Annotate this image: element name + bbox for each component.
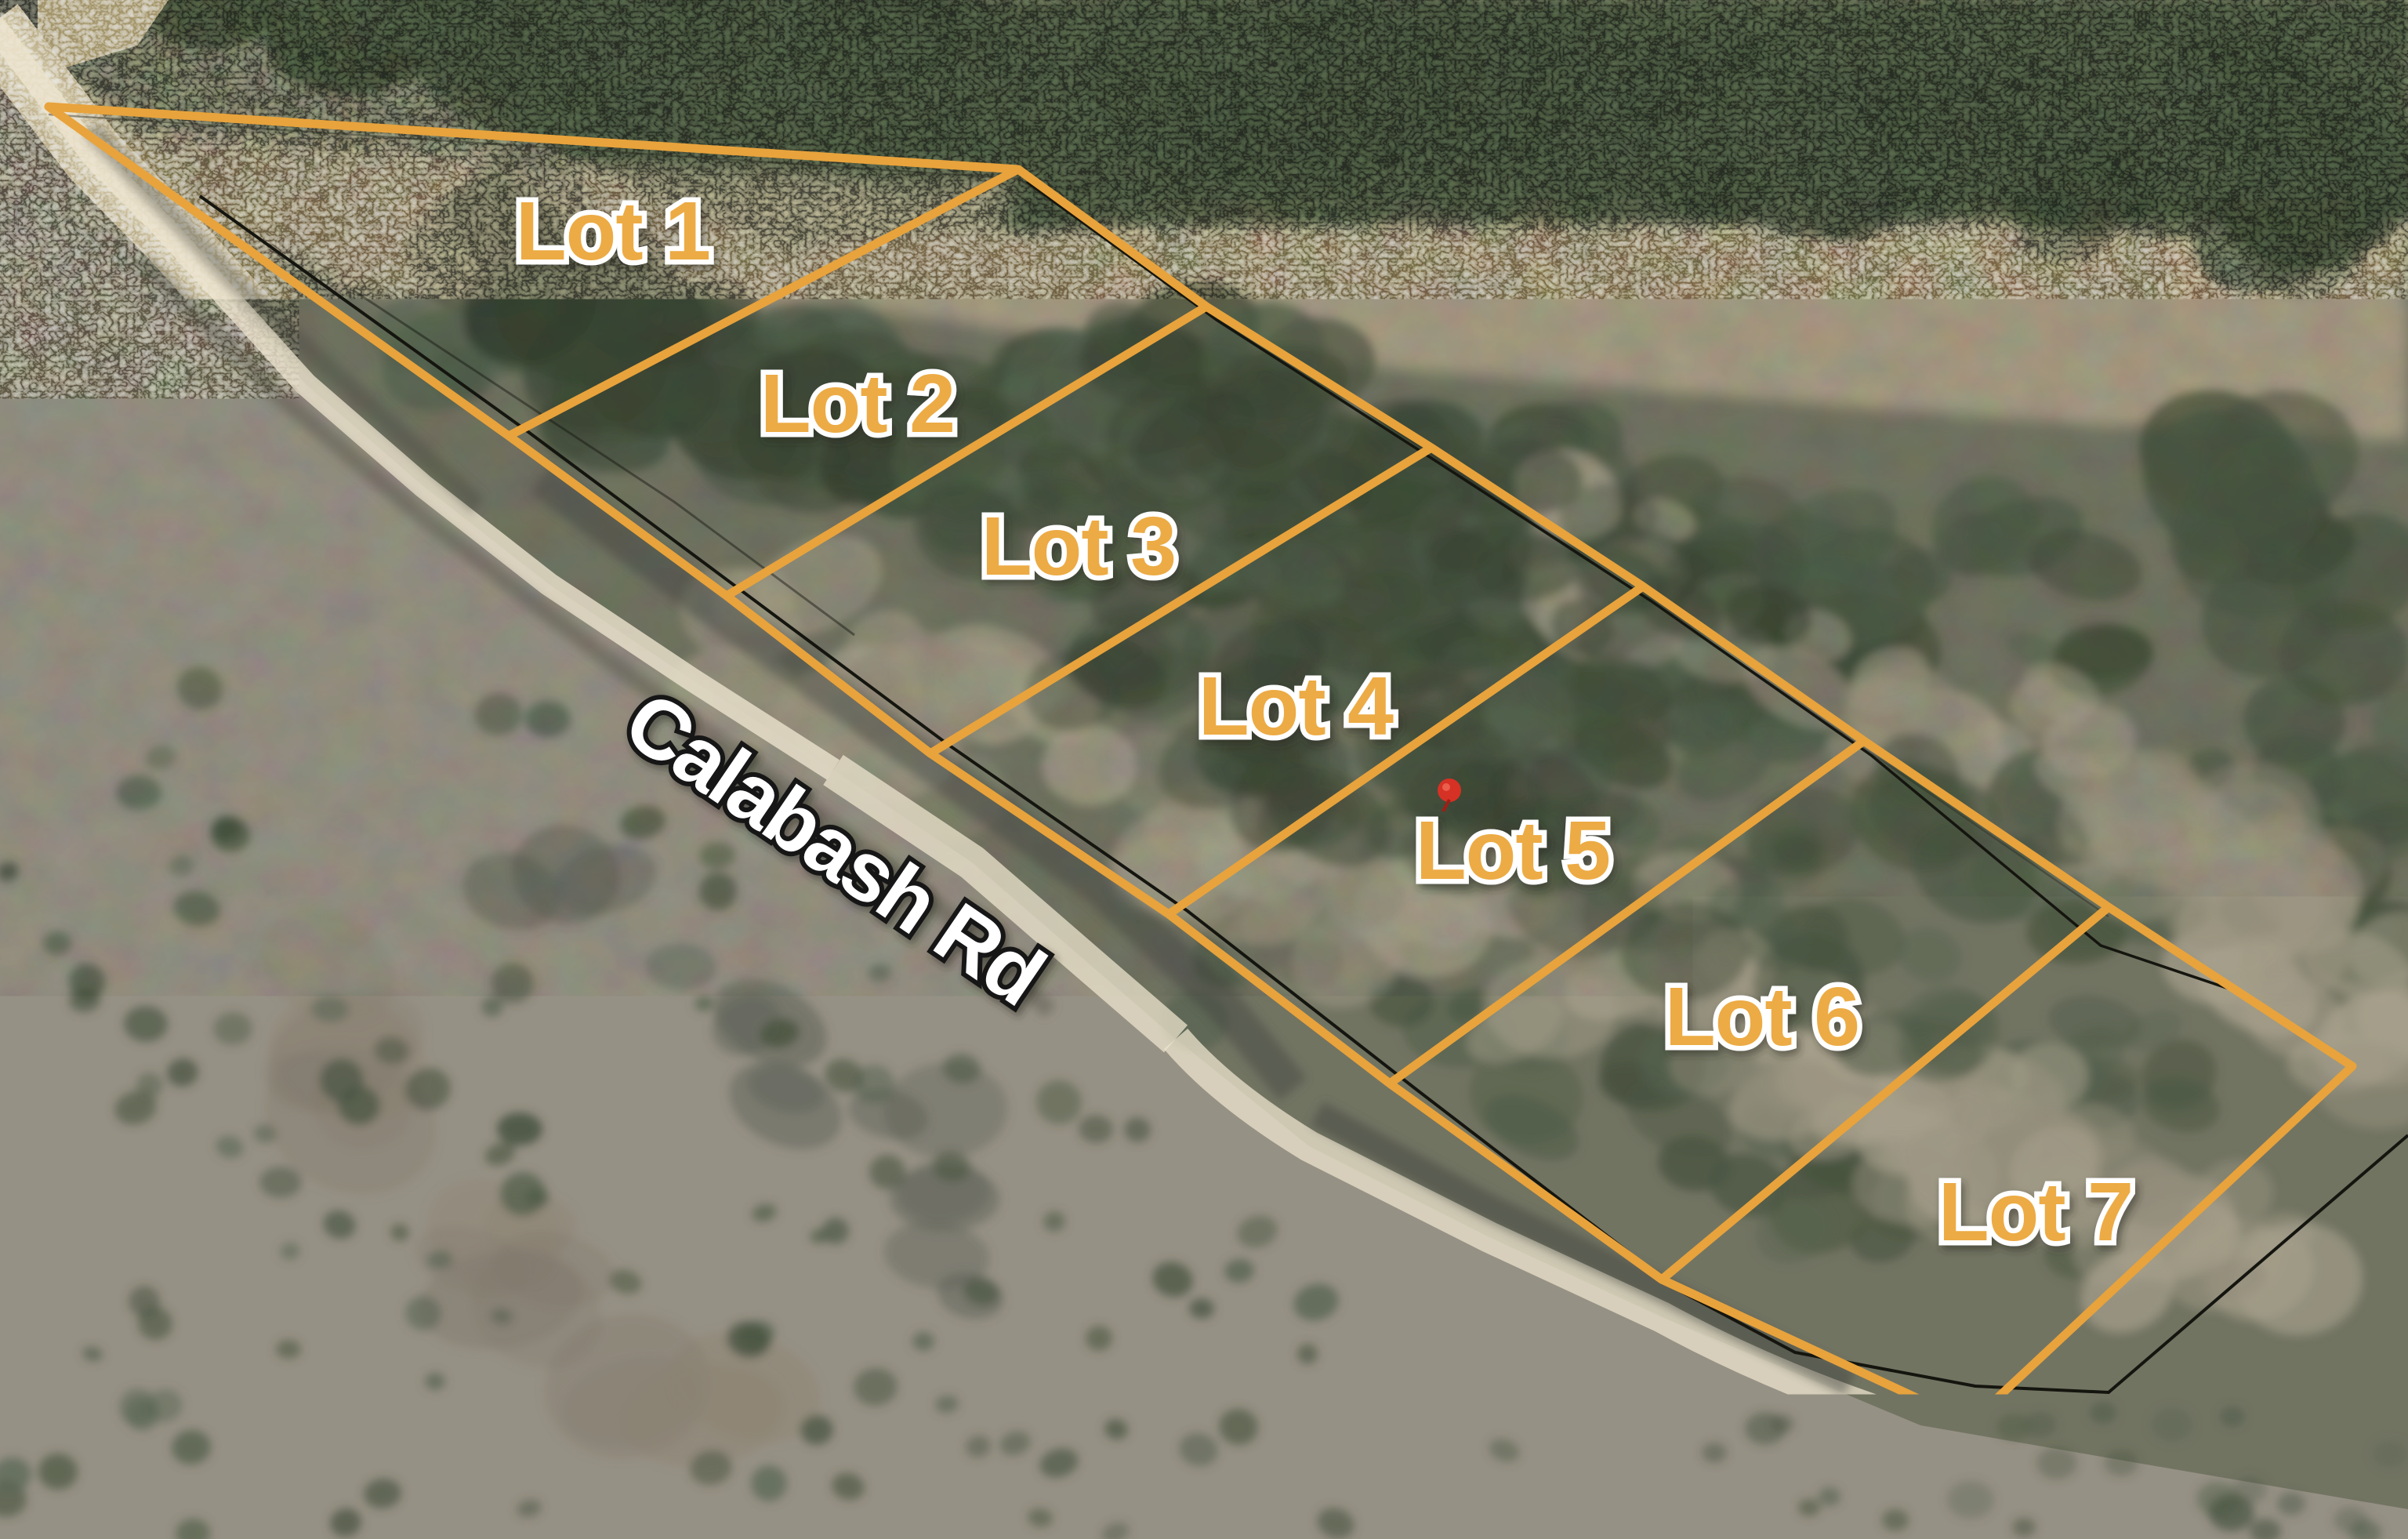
svg-text:Lot 2: Lot 2: [760, 358, 955, 450]
svg-text:Lot 3: Lot 3: [981, 500, 1176, 593]
svg-text:Lot 6: Lot 6: [1665, 971, 1859, 1063]
svg-text:Lot 7: Lot 7: [1938, 1166, 2133, 1258]
svg-text:Lot 4: Lot 4: [1199, 660, 1394, 753]
svg-text:Lot 5: Lot 5: [1416, 804, 1610, 897]
svg-text:Lot 1: Lot 1: [516, 185, 710, 278]
